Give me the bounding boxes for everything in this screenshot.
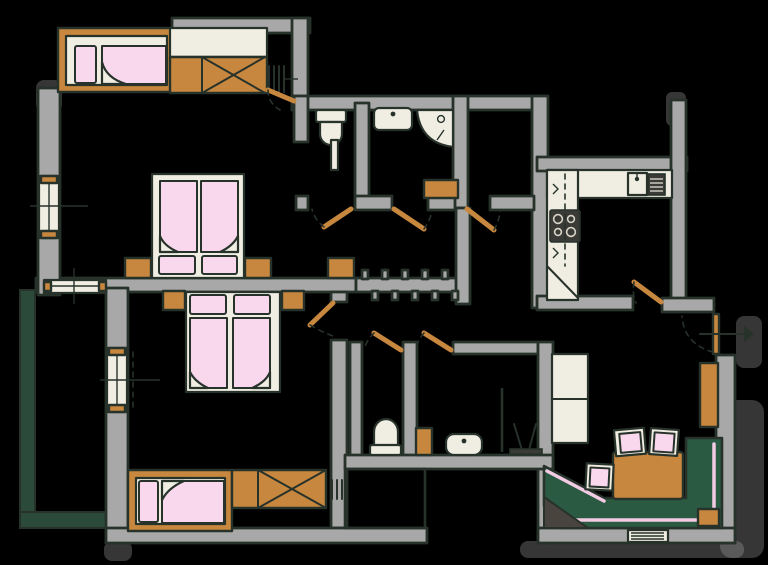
bowl (374, 419, 398, 446)
toilet (370, 419, 401, 455)
coat-hook (402, 270, 408, 279)
blanket (160, 181, 197, 252)
wc-bottom (370, 419, 401, 455)
door-storage (467, 209, 500, 230)
faucet (391, 112, 396, 117)
cabinet (416, 428, 432, 455)
cushion (619, 432, 642, 453)
floor-plan-page: Hand-drawn apartment floor plan (0, 0, 768, 565)
door-wc-bottom (364, 333, 401, 350)
tall-cabinet (700, 363, 718, 427)
door-kitchen (633, 282, 661, 303)
pipe-duct (331, 140, 338, 170)
door-bedroom1 (268, 90, 294, 110)
dresser (328, 258, 354, 278)
double-bed (186, 292, 280, 392)
coat-hook (412, 291, 418, 300)
wall (355, 103, 369, 208)
double-bed (152, 174, 244, 278)
single-bed (58, 28, 172, 92)
wall (662, 298, 714, 312)
coat-hook (432, 291, 438, 300)
door-bathroom-top (394, 209, 432, 229)
wall (490, 196, 534, 210)
bedroom-top-left (58, 28, 354, 278)
bathroom-top (374, 108, 458, 198)
pillow (234, 295, 270, 314)
window-bedroom1 (30, 176, 88, 238)
washbasin (446, 434, 482, 455)
dining-table (613, 452, 683, 499)
coat-hook (362, 270, 368, 279)
balcony (20, 290, 112, 528)
chair (585, 463, 613, 490)
wardrobe (232, 470, 326, 508)
door-bedroom2 (310, 303, 333, 336)
wall (453, 342, 538, 354)
wardrobe (170, 28, 267, 93)
coat-hook (372, 291, 378, 300)
wall (292, 96, 545, 110)
cistern (370, 445, 401, 455)
wall (331, 292, 347, 302)
cushion (653, 432, 674, 452)
window-radiator-living (628, 530, 668, 542)
wall (106, 288, 128, 543)
kitchen (547, 170, 672, 300)
blanket (233, 318, 270, 388)
sink-unit (628, 173, 665, 195)
nightstand (245, 258, 271, 278)
coat-hook (382, 270, 388, 279)
door-bathroom-bottom (416, 333, 451, 350)
nightstand (282, 291, 304, 310)
window-bedroom2 (100, 348, 160, 412)
cabinet (424, 180, 458, 198)
door-wc-top (312, 209, 351, 227)
wash (736, 316, 762, 368)
wc-top (316, 110, 346, 170)
balcony-railing (20, 512, 112, 528)
coat-hook (442, 270, 448, 279)
faucet (462, 439, 467, 444)
cistern (316, 110, 346, 122)
coat-hook (422, 270, 428, 279)
floor-plan-drawing: Hand-drawn apartment floor plan (0, 0, 768, 565)
shelf-cabinet (552, 354, 588, 443)
nightstand (163, 291, 185, 310)
wall (345, 455, 553, 469)
single-bed (128, 470, 232, 531)
wall (294, 96, 308, 142)
pillow (75, 46, 96, 83)
pillow (202, 256, 237, 274)
wall (296, 196, 308, 210)
coat-hook (452, 291, 458, 300)
balcony-railing (20, 290, 35, 528)
pillow (159, 256, 195, 274)
wall (671, 100, 686, 308)
storage-niche (345, 469, 425, 528)
blanket (190, 318, 227, 388)
cushion (589, 467, 609, 487)
wall (350, 342, 362, 458)
washbasin (374, 108, 412, 130)
blanket (201, 181, 238, 252)
sofa-side-unit (698, 509, 719, 526)
pillow (190, 295, 226, 314)
chair (614, 428, 646, 457)
wall (355, 196, 392, 210)
nightstand (125, 258, 151, 278)
living-dining (544, 354, 722, 528)
chair (649, 428, 679, 456)
bathroom-bottom (416, 388, 542, 455)
wall (456, 208, 470, 304)
corner-shower (417, 110, 453, 147)
drainer (648, 174, 665, 195)
pillow (139, 481, 158, 522)
coat-hook (392, 291, 398, 300)
